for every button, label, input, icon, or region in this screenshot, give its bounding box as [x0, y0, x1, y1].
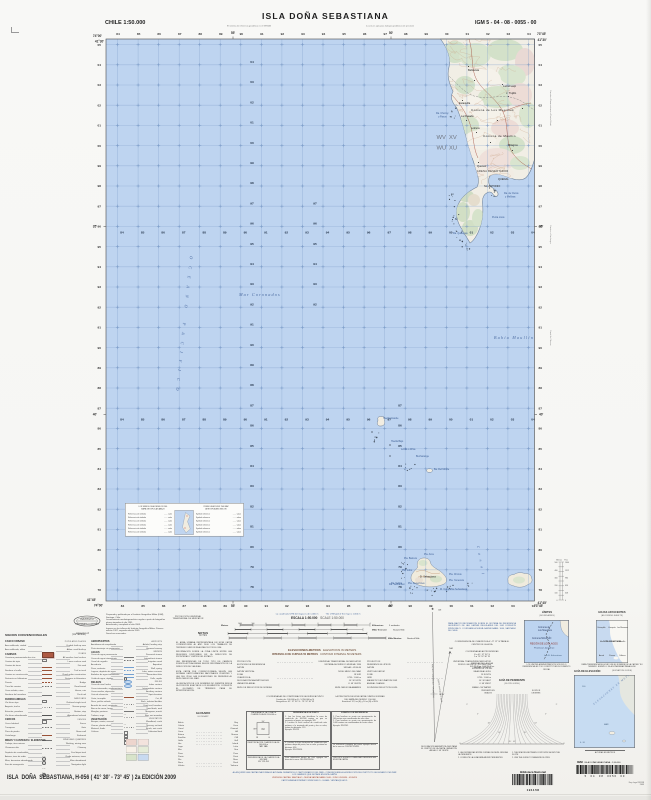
svg-text:500: 500: [252, 623, 255, 625]
svg-text:2°: 2°: [556, 704, 558, 706]
svg-text:82: 82: [98, 507, 102, 511]
svg-text:94: 94: [313, 262, 317, 266]
svg-text:2°: 2°: [466, 704, 468, 706]
svg-text:Symbol reference: Symbol reference: [196, 514, 210, 516]
svg-text:Llanquén: Llanquén: [608, 626, 615, 628]
svg-text:45°: 45°: [513, 741, 516, 743]
svg-text:91: 91: [98, 326, 102, 330]
svg-text:91: 91: [264, 418, 268, 422]
svg-text:99: 99: [428, 231, 432, 235]
svg-text:328: 328: [565, 593, 568, 595]
svg-text:984: 984: [565, 577, 568, 579]
svg-text:....... value: ....... value: [233, 514, 241, 516]
svg-text:....... valor: ....... valor: [164, 517, 172, 519]
svg-text:40': 40': [93, 413, 98, 417]
svg-text:84: 84: [98, 467, 102, 471]
svg-text:00: 00: [98, 144, 102, 148]
svg-text:87: 87: [182, 418, 186, 422]
svg-text:o Pavos: o Pavos: [438, 116, 447, 119]
svg-text:85: 85: [141, 604, 145, 608]
svg-text:Milagros: Milagros: [508, 143, 519, 147]
svg-text:99: 99: [98, 164, 102, 168]
svg-text:86: 86: [539, 427, 543, 431]
svg-text:XU: XU: [261, 728, 265, 731]
svg-text:85: 85: [539, 447, 543, 451]
svg-text:Ba. Del Monte: Ba. Del Monte: [434, 468, 450, 471]
svg-text:40': 40': [539, 413, 544, 417]
svg-text:35': 35': [539, 225, 544, 229]
svg-text:02: 02: [490, 231, 494, 235]
svg-text:41°45': 41°45': [87, 598, 96, 602]
svg-text:97: 97: [98, 204, 102, 208]
svg-text:Isla D. Sebastiana: Isla D. Sebastiana: [544, 654, 563, 657]
svg-text:86: 86: [157, 32, 161, 36]
svg-text:00: 00: [449, 418, 453, 422]
svg-text:100: 100: [555, 593, 558, 595]
svg-text:02: 02: [490, 418, 494, 422]
svg-text:82: 82: [539, 507, 543, 511]
svg-text:La Pasada: La Pasada: [461, 114, 474, 118]
svg-text:El sistema de referencia geodé: El sistema de referencia geodésico es el…: [227, 25, 272, 28]
svg-text:....... value: ....... value: [233, 528, 241, 530]
svg-text:88: 88: [203, 604, 207, 608]
svg-text:Pta. Barrera: Pta. Barrera: [404, 557, 418, 560]
svg-text:96: 96: [367, 418, 371, 422]
svg-text:87: 87: [98, 406, 102, 410]
svg-text:93: 93: [313, 282, 317, 286]
svg-text:74°00': 74°00': [94, 604, 103, 608]
svg-text:....... valor: ....... valor: [164, 521, 172, 523]
svg-text:74°00': 74°00': [93, 34, 102, 38]
svg-text:92: 92: [98, 305, 102, 309]
svg-text:90: 90: [240, 32, 244, 36]
svg-text:87: 87: [182, 231, 186, 235]
svg-text:92: 92: [281, 32, 285, 36]
svg-text:94: 94: [250, 262, 254, 266]
svg-text:94: 94: [98, 265, 102, 269]
svg-text:87: 87: [182, 604, 186, 608]
svg-text:Ra. Sebita: Ra. Sebita: [391, 582, 403, 585]
svg-text:41°45': 41°45': [538, 601, 547, 605]
svg-text:02: 02: [539, 103, 543, 107]
svg-text:XU: XU: [449, 146, 457, 152]
svg-text:94: 94: [326, 418, 330, 422]
svg-text:84: 84: [120, 418, 124, 422]
svg-text:656: 656: [565, 585, 568, 587]
svg-text:04: 04: [98, 63, 102, 67]
svg-text:83: 83: [398, 484, 402, 488]
svg-text:Los Muermos: Los Muermos: [538, 629, 553, 632]
svg-text:10°: 10°: [535, 723, 538, 725]
svg-text:XV: XV: [449, 135, 457, 141]
svg-text:NM: NM: [449, 648, 453, 650]
svg-text:78: 78: [250, 585, 254, 589]
svg-text:97: 97: [383, 32, 387, 36]
svg-text:M. Compañía Sebastiana: M. Compañía Sebastiana: [440, 588, 468, 591]
svg-text:55': 55': [231, 604, 236, 608]
svg-text:98: 98: [408, 231, 412, 235]
svg-text:87: 87: [539, 406, 543, 410]
svg-text:97: 97: [387, 231, 391, 235]
svg-text:Ra. Quillagua: Ra. Quillagua: [453, 232, 468, 235]
svg-text:91: 91: [265, 604, 269, 608]
svg-text:Maullín: Maullín: [620, 640, 626, 642]
svg-text:81: 81: [250, 525, 254, 529]
svg-text:92: 92: [539, 305, 543, 309]
svg-text:00: 00: [539, 144, 543, 148]
svg-text:Levita o Wica: Levita o Wica: [401, 448, 416, 451]
svg-text:04: 04: [527, 32, 531, 36]
svg-text:02: 02: [486, 32, 490, 36]
svg-text:Huella Bajo: Huella Bajo: [391, 440, 404, 443]
svg-text:Referencia de símbolo: Referencia de símbolo: [128, 524, 146, 526]
svg-text:03: 03: [250, 80, 254, 84]
svg-text:88: 88: [539, 386, 543, 390]
svg-text:WU: WU: [437, 146, 447, 152]
svg-text:89: 89: [223, 418, 227, 422]
svg-text:50': 50': [389, 604, 394, 608]
svg-text:95: 95: [250, 242, 254, 246]
svg-text:4: 4: [370, 623, 371, 625]
svg-text:....... valor: ....... valor: [164, 524, 172, 526]
svg-text:96: 96: [98, 225, 102, 229]
svg-text:79: 79: [539, 568, 543, 572]
svg-text:83: 83: [98, 487, 102, 491]
svg-text:55': 55': [231, 31, 236, 35]
svg-text:90: 90: [250, 343, 254, 347]
svg-text:41°30': 41°30': [538, 38, 547, 42]
svg-text:02: 02: [250, 100, 254, 104]
svg-text:79: 79: [98, 568, 102, 572]
svg-text:85: 85: [137, 32, 141, 36]
svg-text:80: 80: [539, 548, 543, 552]
svg-text:REGIÓN DE LOS LAGOS: REGIÓN DE LOS LAGOS: [530, 642, 558, 645]
svg-text:Bellavista: Bellavista: [468, 68, 480, 72]
svg-text:93: 93: [539, 285, 543, 289]
svg-text:Pta. Desertores: Pta. Desertores: [408, 582, 425, 585]
svg-text:Los Muermos: Los Muermos: [617, 626, 628, 628]
svg-text:92: 92: [250, 302, 254, 306]
svg-text:99: 99: [428, 418, 432, 422]
svg-text:92: 92: [285, 231, 289, 235]
svg-text:1312: 1312: [565, 570, 569, 572]
svg-text:84: 84: [398, 464, 402, 468]
svg-text:89: 89: [539, 366, 543, 370]
svg-text:J. Trujillo: J. Trujillo: [506, 91, 517, 95]
svg-text:82: 82: [250, 504, 254, 508]
svg-text:88: 88: [202, 418, 206, 422]
svg-text:90: 90: [98, 346, 102, 350]
svg-text:35': 35': [93, 225, 98, 229]
svg-text:200: 200: [555, 585, 558, 587]
svg-text:Referencia de símbolo: Referencia de símbolo: [128, 514, 146, 516]
svg-text:Huella Grande: Huella Grande: [383, 417, 399, 420]
svg-text:Kilómetros: Kilómetros: [372, 624, 384, 627]
svg-text:18: 18: [256, 737, 259, 739]
svg-text:Symbol reference: Symbol reference: [196, 521, 210, 523]
svg-text:03: 03: [511, 231, 515, 235]
svg-text:Symbol reference: Symbol reference: [196, 528, 210, 530]
svg-text:WV: WV: [437, 135, 446, 141]
svg-text:Bahía Maullín: Bahía Maullín: [494, 335, 534, 340]
svg-text:WV: WV: [253, 728, 257, 730]
svg-text:Symbol reference: Symbol reference: [196, 524, 210, 526]
svg-text:85: 85: [141, 418, 145, 422]
svg-text:86: 86: [398, 424, 402, 428]
svg-text:84: 84: [539, 467, 543, 471]
svg-text:84: 84: [116, 32, 120, 36]
svg-text:86: 86: [162, 604, 166, 608]
svg-text:....... valor: ....... valor: [164, 528, 172, 530]
svg-text:03: 03: [539, 83, 543, 87]
svg-text:Chacao: Chacao: [609, 655, 615, 657]
svg-text:82: 82: [398, 504, 402, 508]
svg-text:Statute Mile: Statute Mile: [393, 629, 405, 632]
svg-text:89: 89: [250, 363, 254, 367]
svg-text:03: 03: [511, 604, 515, 608]
svg-text:2: 2: [318, 623, 319, 625]
svg-text:86: 86: [161, 231, 165, 235]
svg-text:88: 88: [198, 32, 202, 36]
svg-text:Estaquilla: Estaquilla: [598, 625, 606, 628]
svg-text:1: 1: [292, 623, 293, 625]
svg-text:94: 94: [322, 32, 326, 36]
svg-text:Lolcura: Lolcura: [471, 126, 480, 130]
svg-text:0: 0: [565, 600, 566, 602]
svg-text:50': 50': [389, 31, 394, 35]
svg-text:80: 80: [98, 548, 102, 552]
svg-text:94: 94: [539, 265, 543, 269]
svg-text:5 unidades: 5 unidades: [389, 625, 401, 627]
svg-text:98: 98: [408, 418, 412, 422]
svg-text:02: 02: [98, 103, 102, 107]
svg-text:....... valor: ....... valor: [164, 532, 172, 534]
svg-text:90: 90: [244, 231, 248, 235]
svg-text:GRADOS: GRADOS: [484, 691, 493, 694]
svg-text:Referencia de símbolo: Referencia de símbolo: [128, 532, 146, 534]
svg-text:1000: 1000: [238, 623, 242, 625]
svg-text:92: 92: [285, 418, 289, 422]
svg-text:y Mellizas: y Mellizas: [505, 196, 516, 199]
svg-text:....... value: ....... value: [233, 532, 241, 534]
svg-text:93: 93: [305, 231, 309, 235]
svg-text:Lamehuapi: Lamehuapi: [503, 84, 516, 88]
svg-text:Pta. Yenecura: Pta. Yenecura: [449, 579, 465, 582]
svg-text:0: 0: [266, 623, 267, 625]
svg-text:81: 81: [98, 528, 102, 532]
svg-text:84: 84: [250, 464, 254, 468]
svg-text:Pta. Lobo: Pta. Lobo: [402, 569, 413, 572]
svg-text:96: 96: [367, 231, 371, 235]
svg-text:98: 98: [250, 181, 254, 185]
svg-text:88: 88: [250, 383, 254, 387]
svg-text:91: 91: [250, 323, 254, 327]
svg-text:Punta Lisos: Punta Lisos: [492, 216, 505, 219]
svg-text:90: 90: [244, 604, 248, 608]
svg-text:97: 97: [313, 201, 317, 205]
svg-text:80: 80: [398, 545, 402, 549]
svg-text:89: 89: [223, 231, 227, 235]
svg-text:80: 80: [250, 545, 254, 549]
svg-text:91: 91: [260, 32, 264, 36]
svg-text:3: 3: [344, 623, 345, 625]
svg-text:0 - 50: 0 - 50: [580, 742, 585, 744]
svg-text:....... value: ....... value: [233, 521, 241, 523]
svg-text:95: 95: [98, 245, 102, 249]
svg-text:Comuna MAULLÍN: Comuna MAULLÍN: [532, 637, 552, 640]
svg-text:78: 78: [539, 588, 543, 592]
svg-text:94: 94: [326, 231, 330, 235]
svg-text:MAR: MAR: [604, 723, 609, 726]
svg-text:Metros: Metros: [556, 559, 562, 562]
svg-text:45°: 45°: [509, 741, 512, 743]
svg-text:93: 93: [305, 418, 309, 422]
svg-text:86: 86: [250, 424, 254, 428]
svg-text:93: 93: [98, 285, 102, 289]
svg-text:Ancud: Ancud: [599, 654, 604, 657]
svg-text:04: 04: [539, 63, 543, 67]
svg-text:Pies: Pies: [564, 560, 568, 562]
svg-text:03: 03: [507, 32, 511, 36]
svg-text:73°45': 73°45': [537, 32, 546, 36]
svg-text:83: 83: [539, 487, 543, 491]
svg-text:95: 95: [539, 245, 543, 249]
svg-text:Comuna de Los Muermos: Comuna de Los Muermos: [471, 108, 514, 112]
svg-text:....... value: ....... value: [233, 524, 241, 526]
svg-text:INSTITUTO: INSTITUTO: [80, 618, 93, 621]
svg-text:84: 84: [120, 231, 124, 235]
svg-text:03: 03: [511, 418, 515, 422]
svg-text:96: 96: [250, 222, 254, 226]
svg-text:Comuna de Maullín: Comuna de Maullín: [483, 134, 516, 138]
svg-text:500: 500: [555, 562, 558, 564]
svg-text:98: 98: [539, 184, 543, 188]
svg-text:89: 89: [98, 366, 102, 370]
svg-text:Pta. Choros: Pta. Choros: [449, 573, 462, 576]
svg-text:85: 85: [250, 444, 254, 448]
svg-text:Carretera Panamericana a Puert: Carretera Panamericana a Puerto Montt: [549, 90, 552, 126]
svg-text:89: 89: [223, 604, 227, 608]
svg-text:93: 93: [250, 282, 254, 286]
svg-text:99: 99: [539, 164, 543, 168]
svg-text:NORTE MAGNÉTICO 2009: NORTE MAGNÉTICO 2009: [437, 679, 444, 702]
svg-text:MAPA SE EXPLICAN ABAJO: MAPA SE EXPLICAN ABAJO: [141, 508, 165, 511]
svg-text:97: 97: [250, 201, 254, 205]
svg-text:95: 95: [346, 418, 350, 422]
svg-text:00: 00: [250, 141, 254, 145]
svg-text:81: 81: [398, 525, 402, 529]
svg-text:ARE EXPLAINED BELOW: ARE EXPLAINED BELOW: [205, 508, 227, 511]
svg-text:99: 99: [250, 161, 254, 165]
svg-text:95: 95: [346, 231, 350, 235]
svg-text:86: 86: [98, 427, 102, 431]
svg-text:92: 92: [285, 604, 289, 608]
svg-text:87: 87: [250, 403, 254, 407]
svg-text:41°30': 41°30': [95, 40, 104, 44]
svg-text:00: 00: [445, 32, 449, 36]
svg-text:DEGREES: DEGREES: [532, 692, 542, 694]
svg-text:QUEDAL: QUEDAL: [498, 177, 509, 181]
svg-text:Metros: Metros: [221, 624, 229, 627]
svg-text:02: 02: [491, 604, 495, 608]
svg-text:Comuna de: Comuna de: [538, 627, 551, 629]
svg-text:05: 05: [539, 43, 543, 47]
svg-text:la carta es apta para trabajos: la carta es apta para trabajos geodésico…: [366, 25, 414, 28]
svg-text:01: 01: [250, 121, 254, 125]
svg-text:01: 01: [98, 124, 102, 128]
svg-text:87: 87: [398, 403, 402, 407]
svg-text:Symbol reference: Symbol reference: [196, 517, 210, 519]
svg-text:96: 96: [313, 222, 317, 226]
svg-text:01: 01: [470, 418, 474, 422]
svg-text:Referencia de símbolo: Referencia de símbolo: [128, 517, 146, 519]
svg-text:93: 93: [301, 32, 305, 36]
svg-text:83: 83: [250, 484, 254, 488]
svg-text:D. Sebastiana: D. Sebastiana: [420, 576, 436, 579]
svg-text:5°: 5°: [477, 713, 479, 715]
svg-text:01: 01: [466, 32, 470, 36]
svg-text:88: 88: [98, 386, 102, 390]
svg-text:Estaquilla: Estaquilla: [459, 101, 471, 105]
svg-text:98: 98: [404, 32, 408, 36]
svg-text:The UTM grid of the map is 1.0: The UTM grid of the map is 1.000 m: [325, 613, 360, 616]
svg-text:84: 84: [121, 604, 125, 608]
svg-text:Mar Coronados: Mar Coronados: [238, 292, 281, 297]
svg-text:★: ★: [431, 607, 434, 611]
svg-text:Canal de Chacao: Canal de Chacao: [549, 330, 551, 346]
svg-text:Sn. ANTONIO: Sn. ANTONIO: [484, 184, 500, 188]
svg-text:85: 85: [98, 447, 102, 451]
svg-text:88: 88: [202, 231, 206, 235]
svg-text:5°: 5°: [545, 713, 547, 715]
svg-text:Referencia de símbolo: Referencia de símbolo: [128, 521, 146, 523]
svg-text:CN: CN: [438, 610, 442, 612]
svg-text:01: 01: [539, 124, 543, 128]
svg-text:78: 78: [98, 588, 102, 592]
svg-text:91: 91: [264, 231, 268, 235]
svg-text:Calbuco: Calbuco: [619, 655, 626, 657]
svg-text:Camino a Carelmapu: Camino a Carelmapu: [549, 225, 551, 244]
svg-text:0: 0: [557, 600, 558, 602]
svg-text:86: 86: [161, 418, 165, 422]
svg-text:ARENA DESERTADOR: ARENA DESERTADOR: [477, 170, 509, 173]
svg-text:Provincia Llanquihue: Provincia Llanquihue: [534, 646, 555, 649]
svg-text:Pta. Arca: Pta. Arca: [424, 553, 434, 556]
svg-text:97: 97: [539, 204, 543, 208]
svg-text:98: 98: [98, 184, 102, 188]
svg-text:91: 91: [539, 326, 543, 330]
svg-text:300: 300: [555, 577, 558, 579]
svg-text:95: 95: [313, 242, 317, 246]
svg-text:La cuadrícula UTM del mapa es: La cuadrícula UTM del mapa es de 1.000 m: [276, 613, 319, 616]
svg-text:04: 04: [250, 60, 254, 64]
svg-text:400: 400: [555, 570, 558, 572]
svg-text:93: 93: [306, 604, 310, 608]
svg-text:79: 79: [250, 565, 254, 569]
svg-text:Milla Náutica: Milla Náutica: [388, 637, 402, 640]
svg-text:Symbol reference: Symbol reference: [196, 532, 210, 534]
svg-text:92: 92: [313, 302, 317, 306]
svg-text:1640: 1640: [565, 562, 569, 564]
svg-text:Bucharange: Bucharange: [416, 455, 430, 458]
svg-text:Referencia de símbolo: Referencia de símbolo: [128, 528, 146, 530]
svg-text:Milla Terrestre: Milla Terrestre: [372, 629, 388, 632]
svg-text:99: 99: [424, 32, 428, 36]
svg-text:89: 89: [219, 32, 223, 36]
svg-text:81: 81: [539, 528, 543, 532]
svg-text:94: 94: [326, 604, 330, 608]
svg-text:87: 87: [178, 32, 182, 36]
